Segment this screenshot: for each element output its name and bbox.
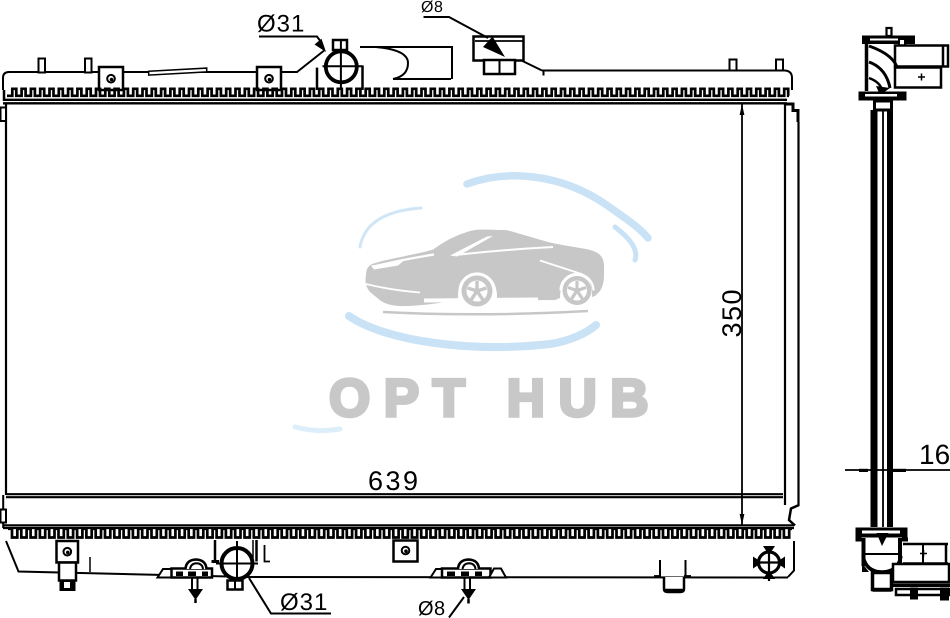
svg-text:OPT HUB: OPT HUB <box>329 369 662 428</box>
svg-text:639: 639 <box>368 466 421 496</box>
svg-text:350: 350 <box>717 288 747 338</box>
svg-text:Ø8: Ø8 <box>421 0 443 16</box>
svg-text:Ø31: Ø31 <box>280 589 328 616</box>
svg-text:Ø8: Ø8 <box>418 598 446 618</box>
svg-text:Ø31: Ø31 <box>257 11 305 38</box>
svg-text:16: 16 <box>919 439 950 470</box>
